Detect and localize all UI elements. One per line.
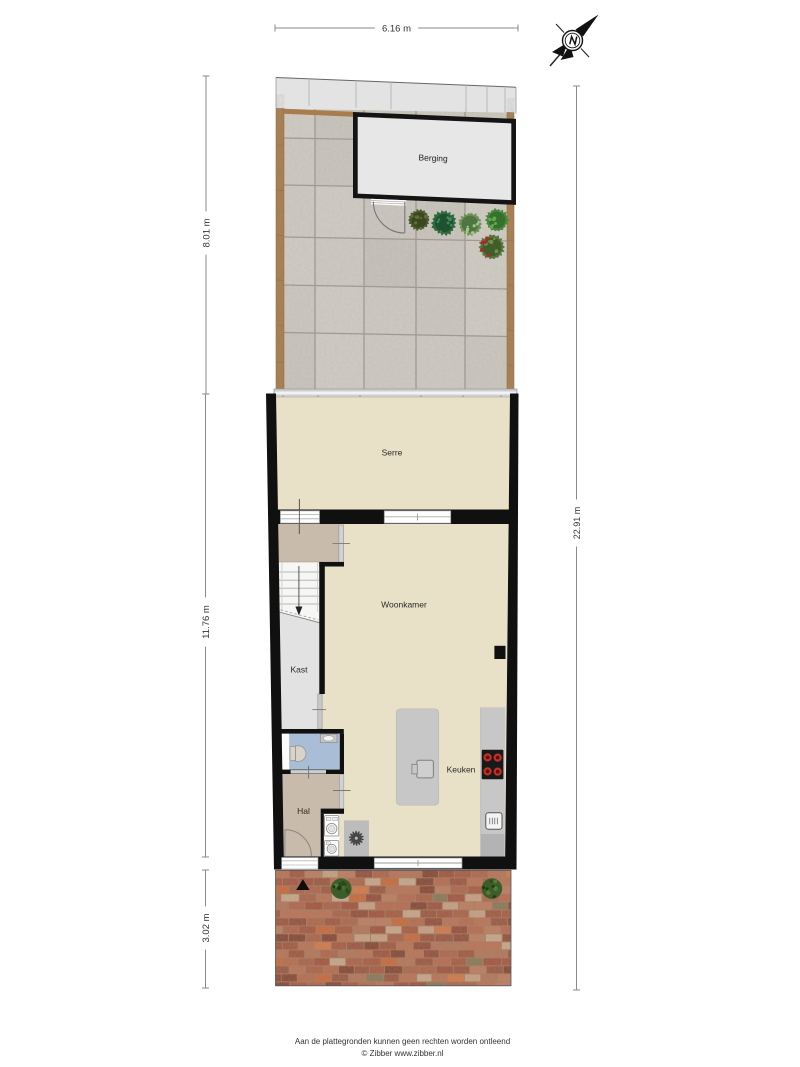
svg-text:© Zibber www.zibber.nl: © Zibber www.zibber.nl <box>362 1049 444 1058</box>
svg-text:8.01 m: 8.01 m <box>202 218 213 247</box>
svg-text:Kast: Kast <box>290 665 308 675</box>
svg-text:Hal: Hal <box>297 806 310 816</box>
svg-text:Berging: Berging <box>418 152 448 163</box>
svg-text:3.02 m: 3.02 m <box>201 913 212 942</box>
svg-text:Aan de plattegronden kunnen ge: Aan de plattegronden kunnen geen rechten… <box>295 1037 510 1046</box>
svg-text:Woonkamer: Woonkamer <box>381 600 427 610</box>
svg-text:11.76 m: 11.76 m <box>201 605 212 639</box>
svg-text:Serre: Serre <box>382 448 403 458</box>
svg-text:Keuken: Keuken <box>447 765 476 775</box>
svg-text:22.91 m: 22.91 m <box>572 507 582 540</box>
svg-text:6.16 m: 6.16 m <box>382 24 411 35</box>
